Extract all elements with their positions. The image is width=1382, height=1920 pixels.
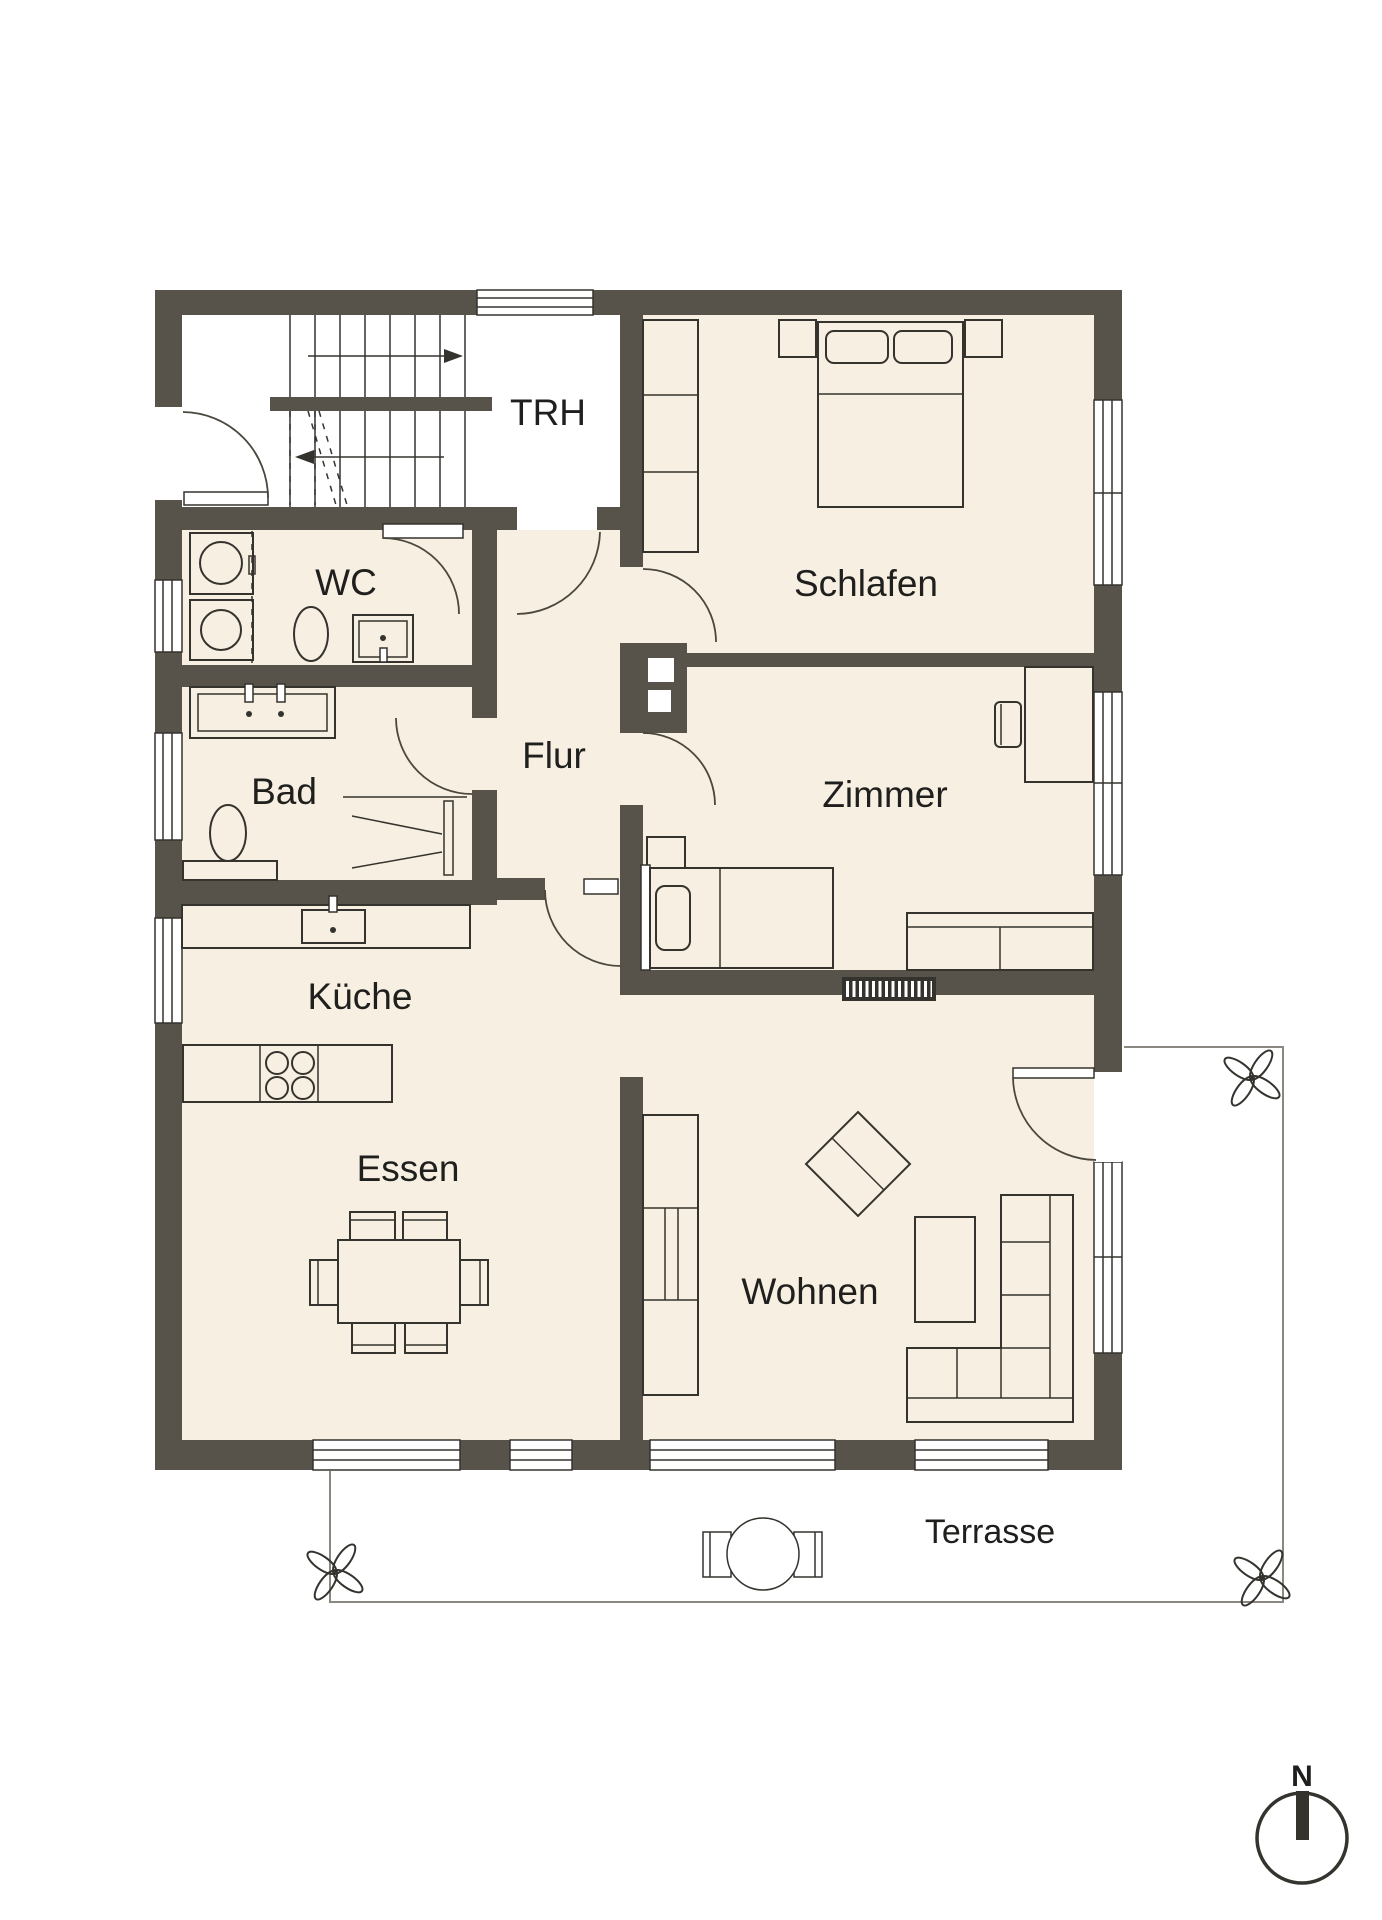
window <box>510 1440 572 1470</box>
door-leaf <box>584 879 618 894</box>
window <box>155 580 182 652</box>
terrace-table <box>727 1518 799 1590</box>
wall-trh-right <box>620 315 643 567</box>
label-terrasse: Terrasse <box>925 1513 1055 1551</box>
window <box>915 1440 1048 1470</box>
wall-bad-kueche <box>182 880 497 905</box>
window <box>477 290 593 315</box>
window <box>155 918 182 1023</box>
floor-plan-page: TRH WC Schlafen Bad Flur Zimmer Küche Es… <box>0 0 1382 1920</box>
label-bad: Bad <box>251 771 317 812</box>
label-essen: Essen <box>357 1148 460 1189</box>
label-flur: Flur <box>522 735 586 776</box>
wall-wc-bad <box>182 665 497 687</box>
label-wc: WC <box>315 562 377 603</box>
plant-icon <box>1221 1047 1283 1109</box>
door-leaf <box>1013 1068 1094 1078</box>
window <box>1094 692 1122 875</box>
wall-exterior-top <box>155 290 1122 315</box>
wall-stairs-wc <box>182 507 517 530</box>
window <box>155 733 182 840</box>
window <box>1094 1162 1122 1353</box>
floor-plan: TRH WC Schlafen Bad Flur Zimmer Küche Es… <box>0 0 1382 1920</box>
label-zimmer: Zimmer <box>822 774 947 815</box>
wall-flur-left-upper <box>472 530 497 718</box>
stair-mid-wall <box>270 397 492 411</box>
chimney-flue <box>648 658 674 682</box>
dining-table <box>338 1240 460 1323</box>
wall-schlafen-zimmer <box>687 653 1094 667</box>
door-leaf <box>383 524 463 538</box>
terrace-dining-set <box>703 1518 822 1590</box>
label-kueche: Küche <box>308 976 413 1017</box>
plant-icon <box>304 1541 366 1603</box>
compass-north-icon: N <box>1257 1760 1347 1883</box>
chimney-block <box>620 643 687 733</box>
door-leaf <box>184 492 268 505</box>
wall-flur-kueche-left <box>472 878 545 900</box>
compass-north-label: N <box>1291 1760 1313 1793</box>
wall-flur-kueche-right <box>620 878 643 900</box>
label-schlafen: Schlafen <box>794 563 938 604</box>
label-trh: TRH <box>510 392 586 433</box>
wall-essen-wohnen <box>620 1077 643 1440</box>
chimney-flue <box>648 690 671 712</box>
label-wohnen: Wohnen <box>741 1271 878 1312</box>
window <box>313 1440 460 1470</box>
window <box>1094 400 1122 585</box>
radiator-icon <box>843 978 935 1000</box>
window <box>650 1440 835 1470</box>
